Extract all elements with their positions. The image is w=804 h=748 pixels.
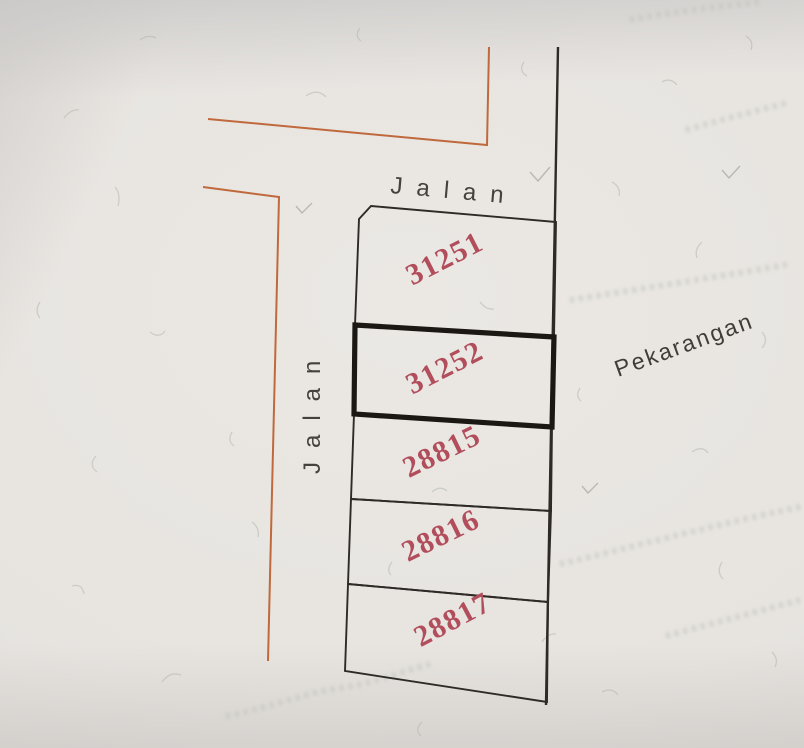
parcel-number-28815: 28815 [398,419,487,485]
road-label-top: Jalan [389,172,518,210]
paper-fiber [522,62,527,76]
paper-fiber [115,187,119,206]
paper-fiber [662,80,677,85]
paper-fiber [612,182,619,196]
ghost-smudge [666,600,800,636]
paper-fiber [719,562,723,579]
parcel-number-28817: 28817 [408,586,496,654]
paper-fiber [72,585,84,594]
paper-fiber [162,674,181,682]
paper-fiber [64,110,79,118]
paper-fiber [140,36,156,40]
parcel-number-31251: 31251 [400,225,488,292]
paper-fiber [296,203,312,213]
road-line-left [203,187,279,661]
cadastral-map: Jalan Jalan Pekarangan 31251 31252 28815… [0,0,804,748]
paper-fiber [722,166,740,178]
paper-fiber [230,432,234,446]
area-label-pekarangan: Pekarangan [611,307,757,381]
paper-fiber [252,522,258,537]
paper-fiber [762,332,766,348]
paper-fiber [432,488,447,492]
paper-fiber [306,92,326,97]
paper-fiber [582,483,598,493]
paper-fiber [389,562,392,575]
paper-fiber [696,242,702,258]
parcel-number-31252: 31252 [400,334,488,401]
ghost-smudge [560,506,804,564]
ghost-smudge [226,664,430,716]
paper-fiber [357,28,361,41]
paper-fiber [150,331,165,335]
paper-fiber [418,722,422,736]
ghost-smudge [686,102,790,130]
paper-fiber [530,167,550,181]
paper-fiber [602,690,618,695]
paper-fiber [578,388,581,401]
ghost-smudge [570,264,790,300]
paper-fiber [772,652,776,667]
paper-fiber [542,634,556,642]
paper-fiber [92,456,97,472]
parcel-28817 [345,584,548,702]
ghost-smudge [630,2,760,20]
paper-fiber [692,449,708,453]
paper-fiber [37,302,40,318]
paper-fiber [480,302,494,309]
road-label-left: Jalan [299,347,326,474]
scanned-cadastral-map-page: Jalan Jalan Pekarangan 31251 31252 28815… [0,0,804,748]
paper-fiber [746,36,752,50]
road-line-top [208,47,489,145]
parcel-number-28816: 28816 [397,503,486,569]
